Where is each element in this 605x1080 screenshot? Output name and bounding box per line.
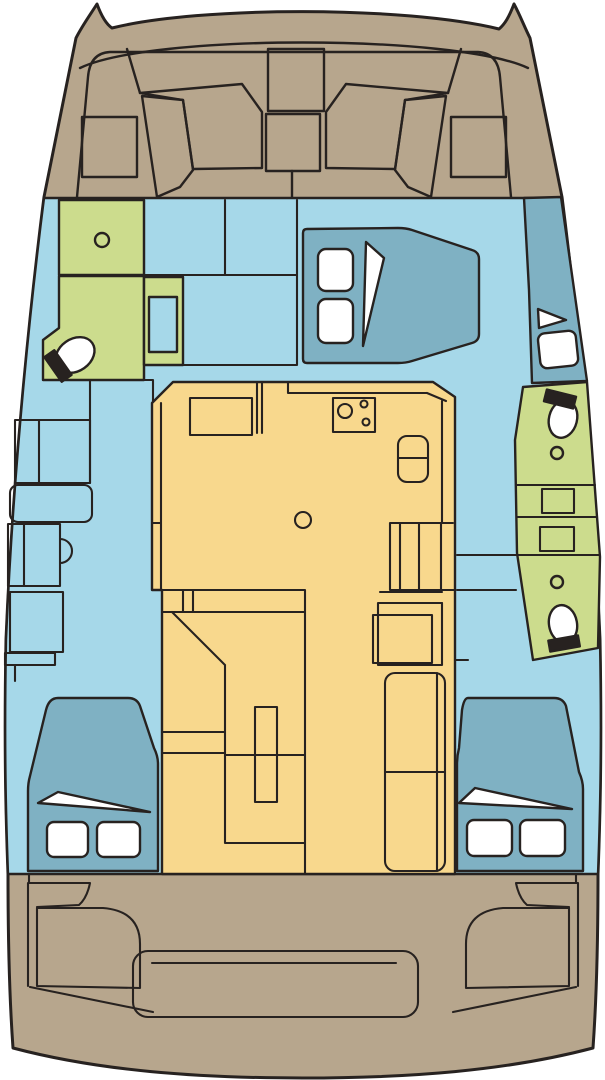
pillow bbox=[318, 299, 353, 343]
floor-plan-canvas bbox=[0, 0, 605, 1080]
saloon-floor bbox=[152, 382, 455, 874]
pillow bbox=[318, 249, 353, 291]
boat-floor-plan bbox=[0, 0, 605, 1080]
head-vanity-room bbox=[59, 200, 144, 275]
shower-pan bbox=[149, 297, 177, 352]
starboard-heads bbox=[515, 382, 600, 660]
pillow bbox=[520, 820, 565, 856]
port-aft-cabin bbox=[28, 698, 158, 871]
deck-hatch bbox=[537, 330, 578, 369]
starboard-entry bbox=[524, 197, 587, 383]
saloon bbox=[152, 382, 455, 874]
owner-forward-cabin bbox=[303, 228, 479, 363]
pillow bbox=[47, 822, 88, 857]
pillow bbox=[467, 820, 512, 856]
pillow bbox=[97, 822, 140, 857]
